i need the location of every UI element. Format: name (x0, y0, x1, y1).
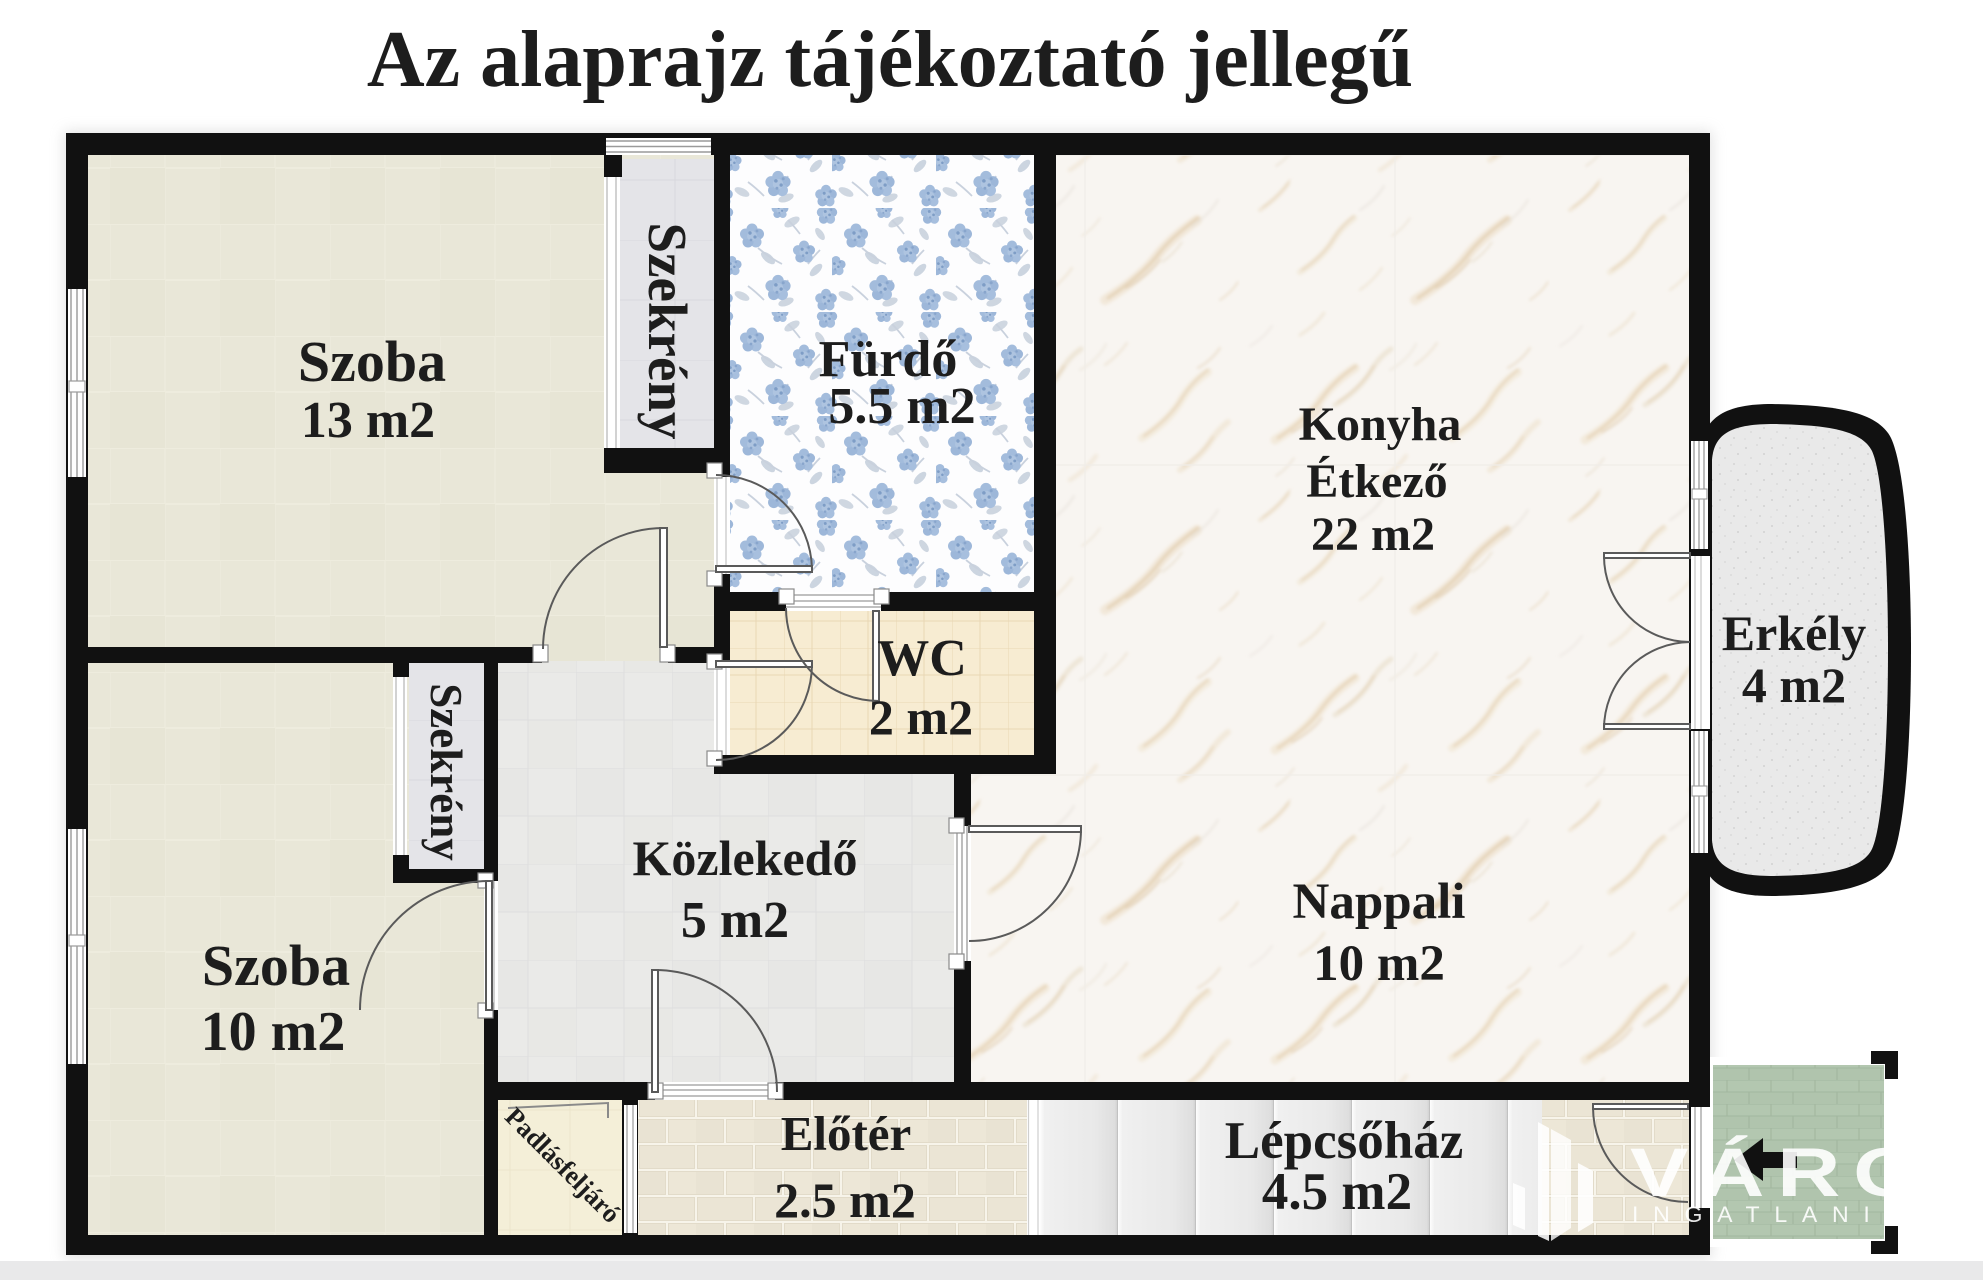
svg-text:Nappali: Nappali (1293, 874, 1466, 930)
svg-text:INGATLANIROD: INGATLANIROD (1632, 1202, 1980, 1226)
svg-text:13 m2: 13 m2 (301, 392, 435, 449)
svg-text:22 m2: 22 m2 (1311, 508, 1435, 561)
svg-text:5 m2: 5 m2 (681, 892, 789, 949)
svg-text:Erkély: Erkély (1722, 605, 1866, 661)
svg-text:Szoba: Szoba (298, 329, 446, 394)
svg-text:WC: WC (877, 630, 967, 687)
svg-text:Szekrény: Szekrény (421, 683, 471, 861)
svg-text:5.5 m2: 5.5 m2 (828, 378, 975, 435)
svg-text:2.5 m2: 2.5 m2 (774, 1172, 916, 1228)
svg-text:Étkező: Étkező (1306, 455, 1447, 508)
svg-text:VÁROS: VÁROS (1630, 1134, 1983, 1211)
svg-text:Szoba: Szoba (202, 933, 350, 998)
svg-text:Konyha: Konyha (1299, 398, 1462, 451)
svg-text:10 m2: 10 m2 (201, 1001, 346, 1063)
svg-text:2 m2: 2 m2 (869, 689, 973, 745)
svg-text:4 m2: 4 m2 (1742, 657, 1846, 713)
svg-text:4.5 m2: 4.5 m2 (1262, 1163, 1412, 1221)
svg-text:Szekrény: Szekrény (637, 223, 698, 440)
svg-text:Az alaprajz tájékoztató jelleg: Az alaprajz tájékoztató jellegű (367, 16, 1413, 104)
svg-text:Közlekedő: Közlekedő (633, 830, 858, 886)
svg-text:10 m2: 10 m2 (1313, 936, 1445, 992)
svg-text:Lépcsőház: Lépcsőház (1225, 1112, 1464, 1170)
svg-text:Előtér: Előtér (781, 1106, 912, 1161)
